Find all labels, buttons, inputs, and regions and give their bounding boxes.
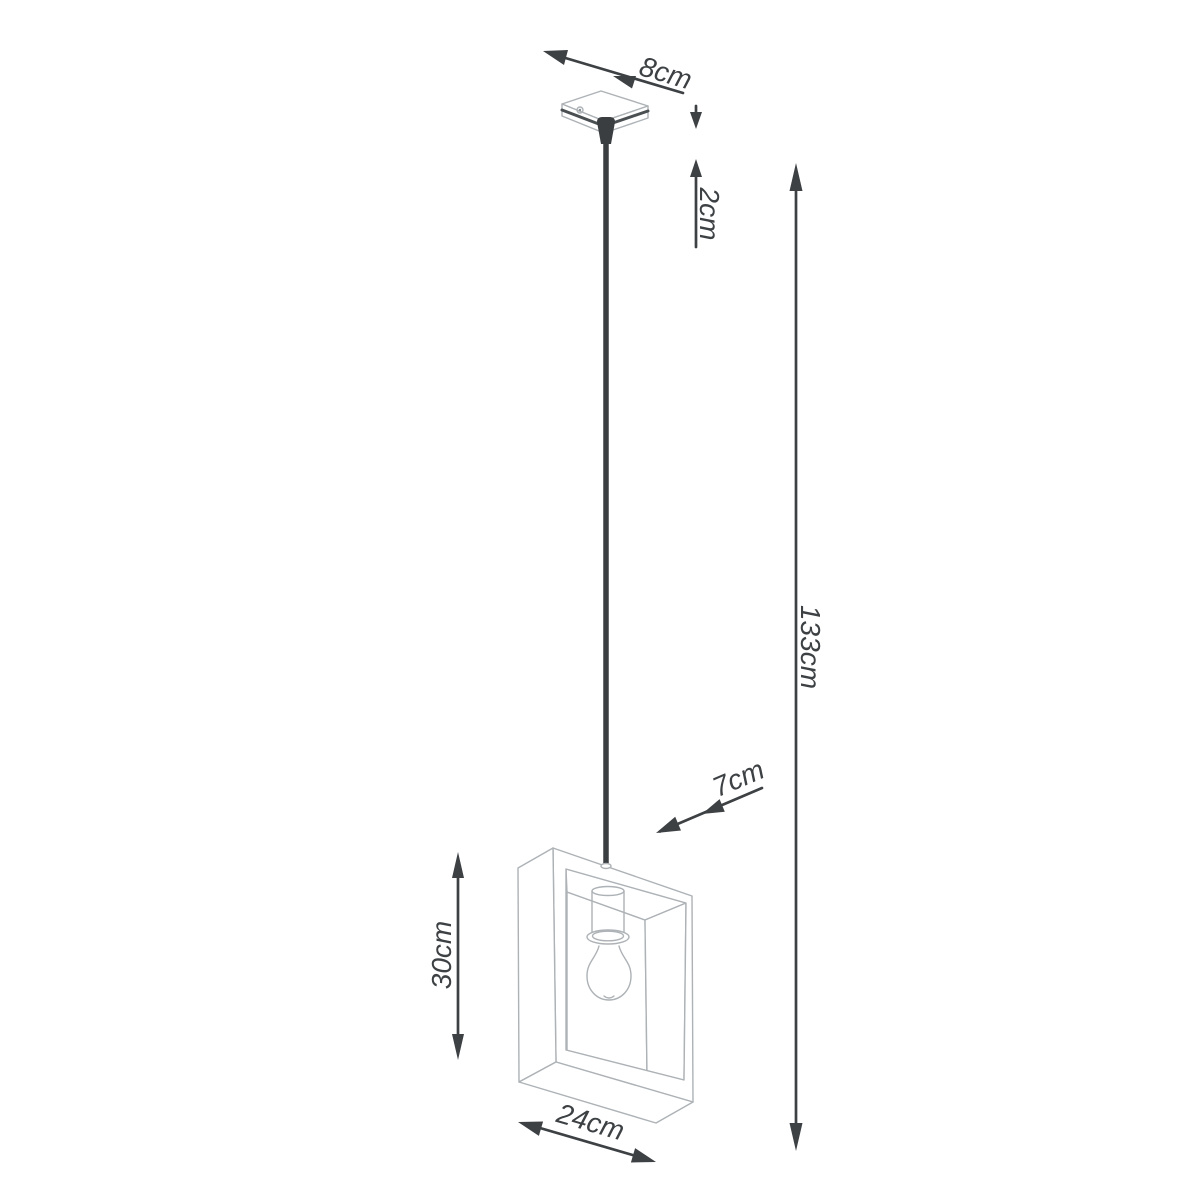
arrowhead-icon	[656, 817, 681, 833]
square-frame-shade	[518, 848, 693, 1123]
arrowhead-icon	[543, 50, 568, 65]
arrowhead-icon	[613, 76, 636, 89]
frame-inner-right-wall	[645, 903, 686, 1080]
arrowhead-icon	[452, 852, 464, 878]
arrowhead-icon	[690, 159, 702, 177]
cord-frame-entry	[601, 864, 611, 869]
arrowhead-icon	[452, 1034, 464, 1060]
dimension-shade-depth: 7cm	[656, 754, 769, 833]
dimension-canopy-width: 8cm	[543, 50, 695, 95]
dimension-label-canopy-height: 2cm	[694, 187, 725, 241]
pendant-lamp-drawing	[518, 91, 693, 1123]
dimension-label-canopy-width: 8cm	[636, 51, 696, 96]
arrowhead-icon	[790, 1123, 803, 1151]
canopy-screw-center	[579, 109, 581, 111]
dimension-shade-height: 30cm	[426, 852, 464, 1060]
dimension-label-shade-height: 30cm	[426, 921, 457, 989]
arrowhead-icon	[631, 1148, 656, 1162]
arrowhead-icon	[790, 163, 803, 191]
cord-grommet	[597, 117, 615, 144]
arrowhead-icon	[690, 112, 702, 129]
diagram-drawing: 8cm 2cm 133cm 7cm	[0, 0, 1200, 1200]
arrowhead-icon	[518, 1122, 543, 1136]
dimension-label-shade-depth: 7cm	[708, 754, 769, 803]
dimension-label-total-height: 133cm	[795, 605, 826, 689]
product-dimension-diagram: 8cm 2cm 133cm 7cm	[0, 0, 1200, 1200]
frame-left-face	[518, 848, 556, 1082]
suspension-cord	[597, 117, 615, 869]
dimension-canopy-height: 2cm	[690, 106, 725, 247]
dimension-total-height: 133cm	[790, 163, 827, 1151]
